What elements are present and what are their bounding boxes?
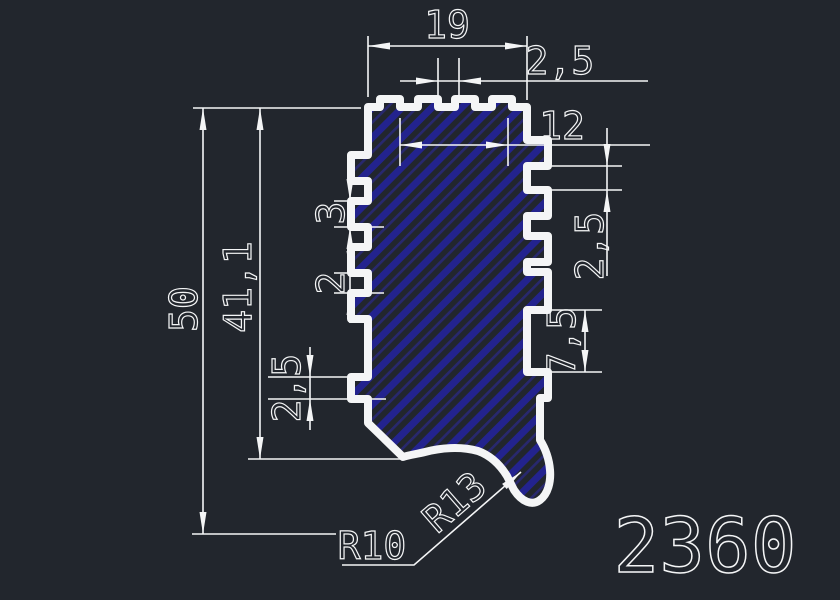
dim-arrow [368,43,390,50]
dim-label-radius-inner: R10 [338,524,407,568]
dim-label-left-gap: 2 [309,272,353,295]
dim-label-top-width: 19 [424,3,470,47]
radius-leaders: R10 R13 [338,463,521,568]
dim-label-inner-width: 12 [539,104,585,148]
dim-label-top-notch: 2,5 [526,39,595,83]
dim-overall-height: 50 [162,108,361,534]
dim-label-radius-outer: R13 [414,463,495,541]
dim-label-right-plain: 7,5 [540,307,584,376]
dim-arrow [257,108,264,130]
dim-right-plain: 7,5 [536,307,602,376]
dim-arrow [505,43,527,50]
dim-label-left-tooth: 3 [309,202,353,225]
dim-arrow [604,190,611,212]
dim-label-right-gap: 2,5 [568,212,612,281]
profile-section [351,99,550,503]
dim-label-overall-height: 50 [162,286,206,332]
dim-label-left-bottom-tooth: 2,5 [265,354,309,423]
dim-label-body-height: 41,1 [216,241,260,333]
cad-drawing-canvas: 19 2,5 12 2,5 7,5 3 [0,0,840,600]
section-hatch [351,99,550,503]
dim-extension-lines [438,58,459,100]
dim-arrow [416,78,438,85]
dim-arrow [200,108,207,130]
part-number: 2360 [613,501,796,590]
dim-arrow [257,437,264,459]
dim-arrow [604,144,611,166]
dim-arrow [459,78,481,85]
cad-viewport: 19 2,5 12 2,5 7,5 3 [0,0,840,600]
dim-arrow [200,512,207,534]
dim-top-width: 19 [368,3,527,100]
dim-top-notch: 2,5 [400,39,648,100]
